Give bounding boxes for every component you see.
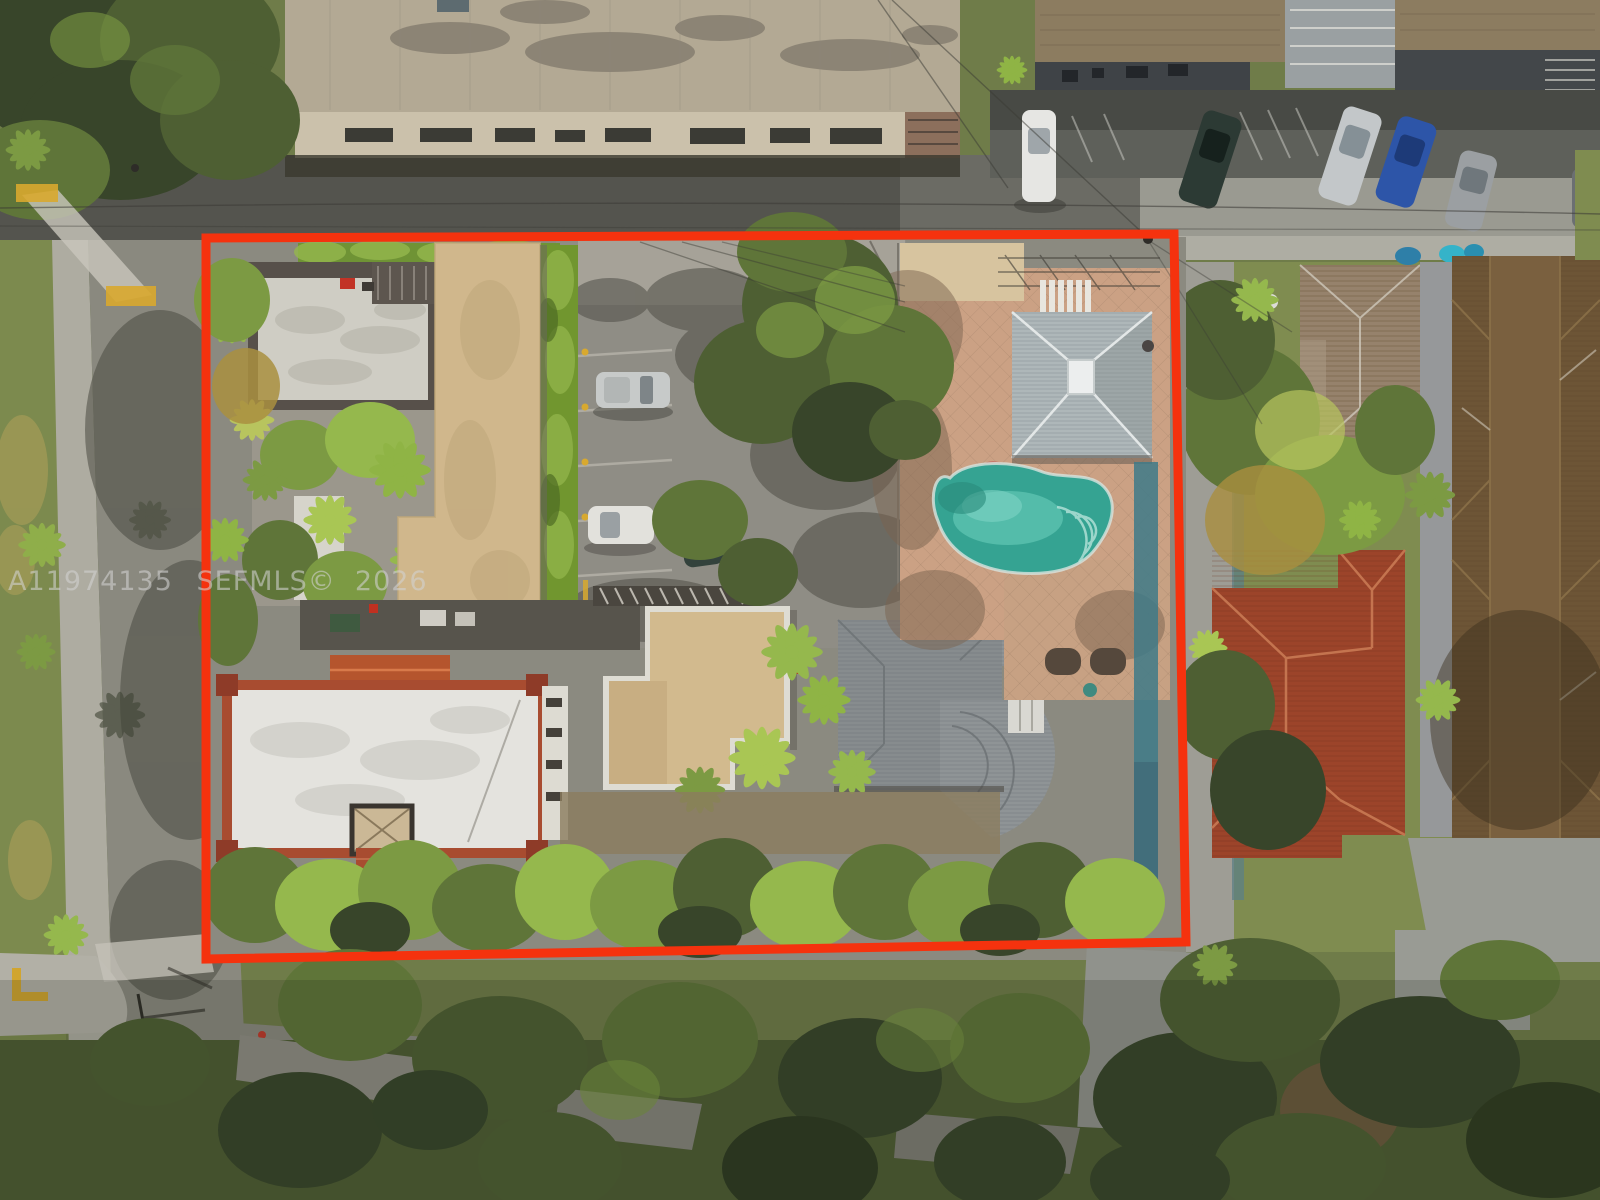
- aerial-photo-canvas: [0, 0, 1600, 1200]
- patio-arch: [1090, 648, 1126, 675]
- blue-barrel: [1395, 247, 1421, 265]
- aerial-photo: A11974135 SEFMLS© 2026: [0, 0, 1600, 1200]
- mls-watermark: A11974135 SEFMLS© 2026: [8, 566, 428, 597]
- satellite-dish: [1142, 340, 1154, 352]
- white-tile-trim-building: [216, 655, 568, 870]
- cabana-skylight: [1068, 360, 1094, 394]
- teal-fence-strip: [1134, 462, 1158, 762]
- service-alley: [300, 600, 640, 650]
- utility-pole: [131, 164, 139, 172]
- townhouse-walkway: [1285, 0, 1405, 88]
- cabana: [1012, 312, 1154, 464]
- red-patio-chair: [340, 278, 355, 289]
- patio-arch: [1045, 648, 1081, 675]
- watermark-mls-name: SEFMLS©: [197, 566, 336, 597]
- watermark-year: 2026: [355, 566, 428, 597]
- white-car: [588, 506, 654, 544]
- industrial-windows: [345, 128, 882, 144]
- right-neighborhood: [1165, 150, 1600, 962]
- vignette: [0, 980, 1600, 1200]
- watermark-listing-id: A11974135: [8, 566, 173, 597]
- red-object: [369, 604, 378, 613]
- industrial-building: [285, 0, 960, 177]
- rooftop-vent: [437, 0, 469, 12]
